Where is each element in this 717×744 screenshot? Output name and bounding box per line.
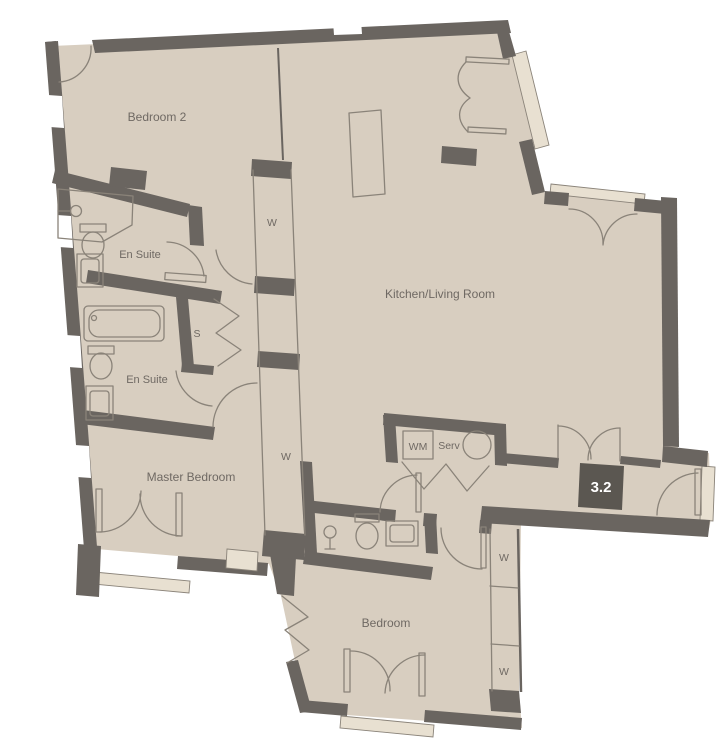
window-notch-left-4	[75, 445, 91, 478]
label-wardrobe-top: W	[267, 217, 277, 229]
room-label-bedroom2: Bedroom 2	[128, 110, 187, 124]
wardrobe-cap-1	[251, 159, 292, 179]
wall-kitchen-right	[661, 197, 679, 447]
room-label-master-bedroom: Master Bedroom	[147, 470, 236, 484]
wall-corner-mass-bedroom-nw	[270, 554, 296, 596]
floorplan-svg: Bedroom 2 En Suite En Suite Master Bedro…	[0, 0, 717, 744]
label-unit-number: 3.2	[591, 479, 612, 496]
label-wardrobe-bedroom-upper: W	[499, 552, 509, 564]
room-label-kitchen-living: Kitchen/Living Room	[385, 287, 495, 301]
balcony-threshold-master-bedroom	[93, 572, 190, 593]
wall-bedroom2-pier	[109, 167, 147, 190]
label-wardrobe-master: W	[281, 451, 291, 463]
label-wardrobe-bedroom-lower: W	[499, 666, 509, 678]
wardrobe-cap-3	[257, 351, 300, 370]
window-master-bedroom-bottom	[226, 549, 258, 571]
label-washing-machine: WM	[409, 441, 428, 453]
window-notch-left-3	[66, 335, 82, 368]
wall-bedroom2-lobby	[188, 205, 204, 246]
label-service: Serv	[438, 440, 460, 452]
room-label-ensuite-top: En Suite	[119, 249, 161, 261]
wall-bedroom-wardrobe-cap	[489, 689, 521, 713]
room-label-bedroom: Bedroom	[362, 616, 411, 630]
wardrobe-cap-2	[254, 276, 295, 296]
wardrobe-cap-4	[262, 530, 306, 560]
entrance-threshold	[700, 466, 715, 521]
room-label-ensuite-bottom: En Suite	[126, 374, 168, 386]
window-notch-left-1	[48, 95, 64, 128]
window-notch-top	[333, 20, 362, 35]
wall-shower-room-right	[424, 514, 438, 554]
label-store: S	[193, 328, 200, 340]
floorplan-page: Bedroom 2 En Suite En Suite Master Bedro…	[0, 0, 717, 744]
window-notch-left-2	[57, 215, 73, 248]
wall-kitchen-pier	[441, 146, 477, 166]
wall-kitchen-east-top-left	[544, 191, 569, 206]
wall-corner-bottom-left	[76, 544, 101, 597]
